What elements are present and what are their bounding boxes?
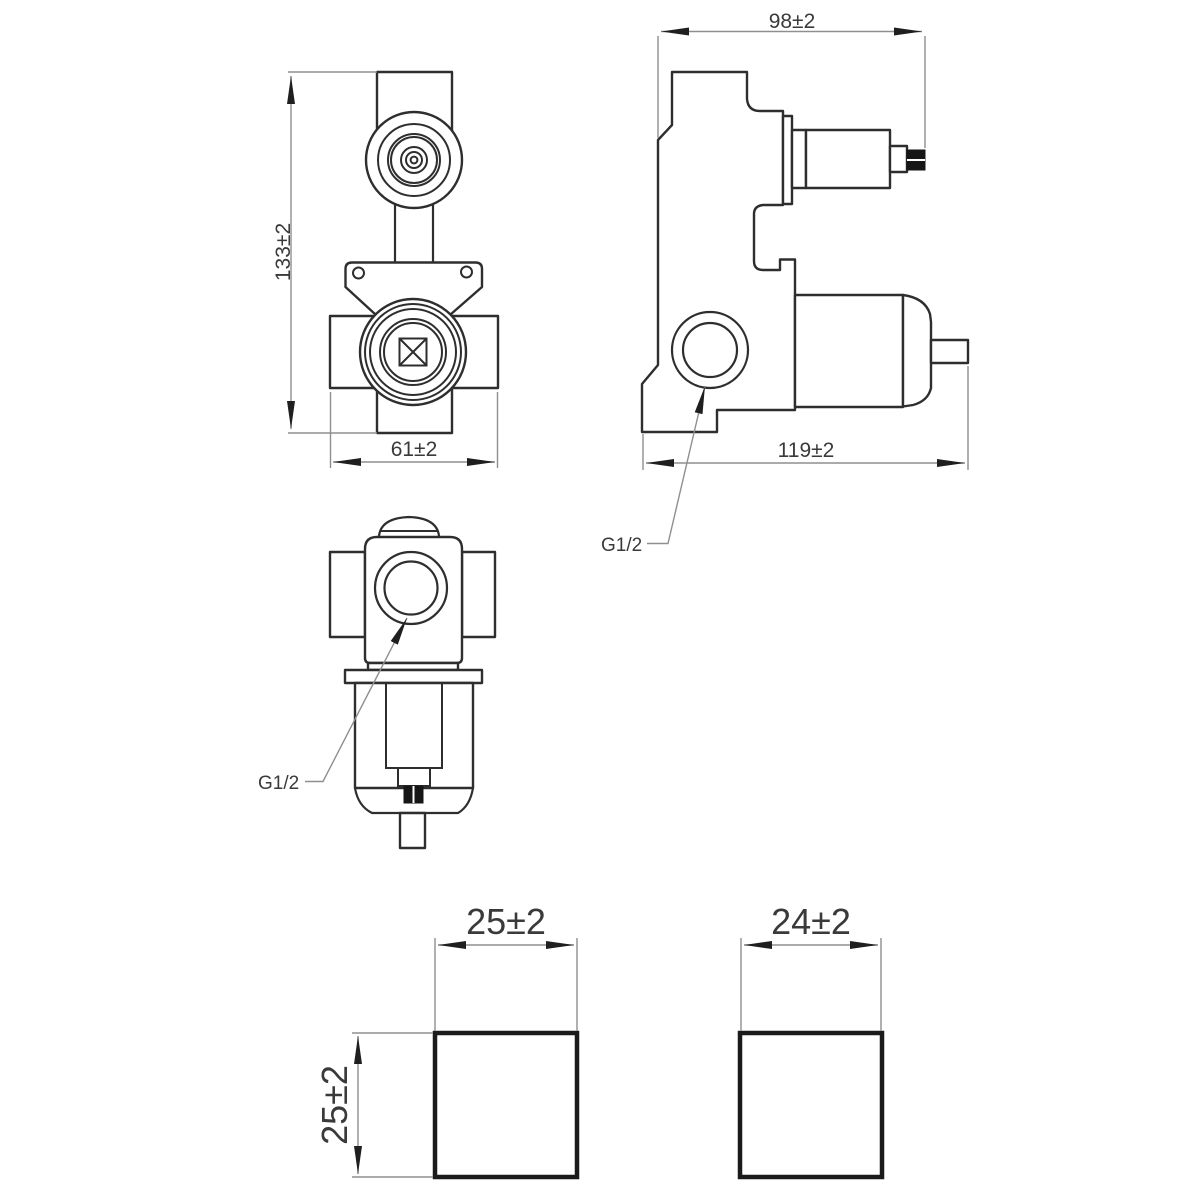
handle-front-square (435, 1033, 577, 1177)
mounting-flange (345, 670, 482, 683)
valve-dimension-drawing: 133±2 61±2 (0, 0, 1200, 1200)
cartridge-body (806, 130, 890, 188)
left-port-wing (330, 552, 365, 637)
front-view: 133±2 61±2 (272, 72, 498, 468)
upper-spindle-face (366, 112, 462, 208)
dim-handle-width-25: 25±2 (435, 901, 577, 1031)
dim-handle-width-24: 24±2 (741, 901, 881, 1031)
handle-side-view: 24±2 (740, 901, 882, 1177)
plan-body (365, 537, 462, 663)
dim-label-top-width: 98±2 (769, 10, 816, 33)
handle-front-view: 25±2 25±2 (314, 901, 577, 1177)
lower-cartridge (795, 295, 968, 407)
side-view: 98±2 119±2 G1/2 (601, 10, 968, 556)
thermostat-body (795, 295, 903, 407)
thermostat-barrel-cap (903, 295, 931, 407)
dim-label-width: 24±2 (771, 901, 851, 942)
handle-side-square (740, 1033, 882, 1177)
port-thread-label: G1/2 (258, 773, 299, 794)
top-view: G1/2 (258, 517, 495, 848)
dim-label-width: 61±2 (391, 438, 438, 461)
dim-handle-height-25: 25±2 (314, 1033, 433, 1177)
right-port-wing (462, 552, 495, 637)
technical-drawing-canvas: 133±2 61±2 (0, 0, 1200, 1200)
valve-body-profile (642, 72, 795, 432)
dim-label-height: 25±2 (314, 1065, 355, 1145)
bottom-spindle-stem (400, 813, 425, 848)
dim-label-height: 133±2 (272, 223, 295, 281)
cap-dome-arc (379, 517, 439, 536)
thermostat-stem (931, 340, 968, 363)
upper-cartridge (783, 116, 925, 204)
dim-label-width: 25±2 (466, 901, 546, 942)
lower-housing (355, 683, 473, 788)
cartridge-collar (792, 130, 806, 188)
main-control-face (360, 299, 466, 405)
cartridge-base-plate (783, 116, 792, 204)
spindle-outer-circle (366, 112, 462, 208)
cartridge-neck (890, 146, 907, 172)
port-thread-label: G1/2 (601, 535, 642, 556)
connecting-stem (395, 205, 433, 262)
dim-label-bottom-width: 119±2 (778, 439, 835, 462)
